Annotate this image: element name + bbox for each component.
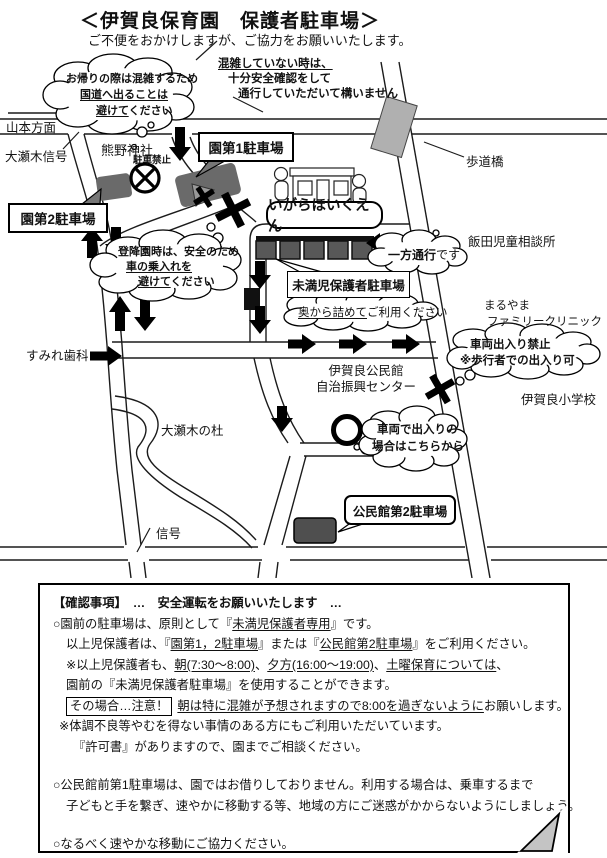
cloud-novehicle-line2: ※歩行者での出入り可 (460, 352, 575, 368)
cloud-oneway-bold: 一方通行 (388, 248, 436, 262)
cloud-dropoff-line3-u: 避けて (138, 276, 171, 288)
label-kominkan-2: 自治振興センター (310, 376, 422, 395)
child-right-icon (353, 175, 366, 188)
lot2-label-box: 園第2駐車場 (8, 203, 108, 233)
label-signal: 信号 (156, 523, 181, 542)
label-no-parking: 駐車禁止 (133, 152, 171, 166)
arrow-down-entry (169, 127, 191, 161)
no-parking-icon (131, 164, 159, 192)
center-road (254, 358, 306, 578)
notice-1b: 』です。 (331, 617, 379, 631)
notice-5b: お願いします。 (484, 699, 569, 713)
cloud-oneway-rest: です (436, 248, 460, 262)
label-sumire: すみれ歯科 (26, 345, 89, 364)
arrow-right-2 (339, 334, 367, 354)
label-maruyama-1: まるやま (484, 297, 530, 313)
notice-1u: 未満児保護者専用 (232, 617, 330, 631)
label-mori: 大瀬木の杜 (161, 420, 224, 439)
x-mark-large (217, 194, 250, 227)
page-title: ＜伊賀良保育園 保護者駐車場＞ (80, 6, 380, 33)
cloud-homeward-line2: 国道へ出ることは (80, 86, 168, 102)
cloud-homeward-line3: 避けてください (96, 102, 173, 118)
cloud-fillback-u: 奥から詰めて (298, 307, 367, 319)
arrow-right-1 (288, 334, 316, 354)
label-footbridge: 歩道橋 (466, 151, 504, 170)
notice-line-7: 『許可書』がありますので、園までご相談ください。 (53, 737, 556, 758)
mimanji-label: 未満児保護者駐車場 (292, 275, 405, 294)
kominkan2-label: 公民館第2駐車場 (353, 501, 447, 520)
arrow-down-center-2 (249, 306, 271, 334)
arrow-up-2 (109, 296, 131, 331)
notice-3u3: 土曜保育については (386, 658, 496, 672)
school-label-box: いがらほいくえん (266, 201, 383, 229)
notice-attention-box: その場合…注意！ (66, 697, 172, 716)
entry-circle-mark (334, 417, 361, 444)
east-road (112, 342, 438, 358)
notice-2c: 』をご利用ください。 (412, 637, 535, 651)
notice-2a: 以上児保護者は、『 (66, 637, 171, 651)
cloud-dropoff-line3-r: ください (171, 276, 215, 288)
cloud-vehicleentry-line1: 車両で出入りの (377, 421, 458, 437)
cloud-vehicleentry-line2: 場合はこちらから (372, 438, 464, 454)
cloud-dropoff-line3: 避けてください (138, 273, 215, 289)
cloud-oneway-line: 一方通行です (388, 246, 460, 263)
arrow-right-3 (392, 334, 420, 354)
label-yamamoto: 山本方面 (6, 117, 56, 136)
child-left-icon (275, 168, 288, 181)
arrow-down-3 (271, 406, 293, 432)
cloud-novehicle-line1: 車両出入り禁止 (470, 336, 551, 352)
label-elementary: 伊賀良小学校 (521, 389, 596, 408)
footbridge-pointer (424, 142, 464, 157)
school-label: いがらほいくえん (268, 194, 381, 236)
notice-3u1: 朝(7:30～8:00) (174, 658, 255, 672)
cloud-homeward-line1: お帰りの際は混雑するため (66, 70, 198, 86)
notice-line-3: ※以上児保護者も、朝(7:30～8:00)、夕方(16:00～19:00)、土曜… (53, 655, 556, 676)
notice-line-1: ○園前の駐車場は、原則として『未満児保護者専用』です。 (53, 614, 556, 635)
notice-line-4: 園前の『未満児保護者駐車場』を使用することができます。 (53, 675, 556, 696)
arrow-right-corner (90, 346, 122, 366)
cloud-homeward-line3-r: ください (129, 105, 173, 117)
cloud-dropoff-line2: 車の乗入れを (126, 258, 192, 274)
notice-1a: ○園前の駐車場は、原則として『 (53, 617, 232, 631)
notcrowded-line1: 混雑していない時は、 (218, 55, 333, 71)
confirmation-notice-box: 【確認事項】 … 安全運転をお願いいたします … ○園前の駐車場は、原則として『… (38, 583, 570, 853)
notice-3a: ※以上児保護者も、 (66, 658, 174, 672)
notcrowded-line3: 通行していただいて構いません (238, 85, 398, 101)
label-osegi-signal: 大瀬木信号 (5, 146, 68, 165)
lot1-label-box: 園第1駐車場 (198, 132, 294, 162)
cloud-fillback-r: ご利用ください (367, 307, 448, 319)
page-subtitle: ご不便をおかけしますが、ご協力をお願いいたします。 (88, 30, 411, 49)
notice-3c: 、 (374, 658, 386, 672)
notice-line-9: 子どもと手を繋ぎ、速やかに移動する等、地域の方にご迷惑がかからないようにしましょ… (53, 796, 556, 817)
notcrowded-line2: 十分安全確認をして (228, 70, 331, 86)
footbridge-shape (371, 97, 417, 158)
lot2-label: 園第2駐車場 (20, 208, 95, 228)
notice-line-10: ○なるべく速やかな移動にご協力ください。 (53, 834, 556, 855)
label-maruyama-2: ファミリークリニック (487, 313, 602, 329)
notice-3b: 、 (255, 658, 267, 672)
bottom-road (0, 547, 607, 560)
notice-line-2: 以上児保護者は、『園第1，2駐車場』または『公民館第2駐車場』をご利用ください。 (53, 634, 556, 655)
branch-road (112, 396, 256, 548)
notice-3u2: 夕方(16:00～19:00) (267, 658, 374, 672)
cloud-homeward-line3-u: 避けて (96, 105, 129, 117)
kominkan2-label-box: 公民館第2駐車場 (344, 495, 456, 525)
notice-line-5: その場合…注意！朝は特に混雑が予想されますので8:00を過ぎないようにお願いしま… (53, 696, 556, 717)
notice-2u2: 公民館第2駐車場 (320, 637, 413, 651)
parking-notice-page: ＜伊賀良保育園 保護者駐車場＞ ご不便をおかけしますが、ご協力をお願いいたします… (0, 0, 607, 858)
mimanji-label-box: 未満児保護者駐車場 (287, 271, 410, 298)
notice-heading: 【確認事項】 … 安全運転をお願いいたします … (53, 593, 556, 614)
cloud-fillback-line: 奥から詰めてご利用ください (298, 304, 448, 320)
label-iida: 飯田児童相談所 (468, 231, 556, 250)
lot1-label: 園第1駐車場 (208, 137, 283, 157)
notice-3d: 、 (496, 658, 508, 672)
notice-line-8: ○公民館前第1駐車場は、園ではお借りしておりません。利用する場合は、乗車するまで (53, 775, 556, 796)
notice-line-6: ※体調不良等やむを得ない事情のある方にもご利用いただいています。 (53, 716, 556, 737)
cloud-dropoff-line1: 登降園時は、安全のため (118, 243, 239, 259)
kominkan-lot-rect (294, 518, 336, 543)
notice-5u: 朝は特に混雑が予想されますので8:00を過ぎないように (177, 699, 484, 713)
notice-2u1: 園第1，2駐車場 (171, 637, 258, 651)
notice-2b: 』または『 (258, 637, 320, 651)
arrow-down-center-1 (249, 261, 271, 289)
